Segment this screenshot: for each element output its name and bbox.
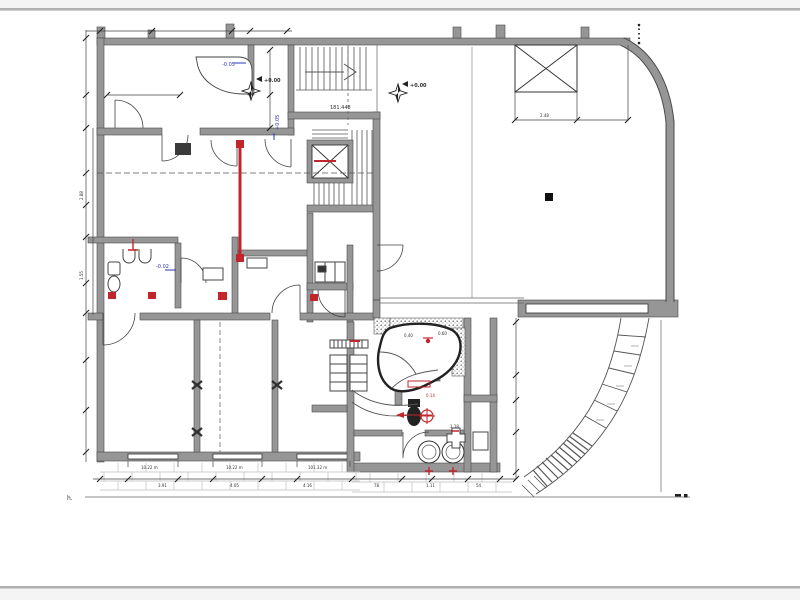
- skylight-opening: [515, 45, 628, 120]
- dim-number: 4.16: [303, 483, 312, 488]
- selected-wall-red: [239, 143, 242, 258]
- landing-label: 181.448: [330, 105, 351, 111]
- terrace-note: h.: [67, 495, 73, 502]
- curved-ramp: [522, 318, 649, 497]
- red-annotations: [108, 140, 459, 475]
- wall-joint-x-icons: [192, 381, 282, 436]
- dim-number: 1.55: [79, 271, 84, 280]
- bench: [203, 268, 223, 280]
- dim-number: 1.11: [426, 483, 435, 488]
- sink-icon: [123, 249, 135, 263]
- radiator: [330, 340, 368, 348]
- level-label: +0.00: [410, 83, 427, 89]
- benchmark-star-icon: [389, 84, 407, 102]
- wc-dark-icon: [407, 406, 421, 426]
- table: [247, 258, 267, 268]
- window-label: 10.22 m: [141, 465, 158, 470]
- wc-icon: [108, 262, 120, 275]
- skylight-dim: 2.48: [540, 113, 549, 118]
- pool-depth: 0.40: [404, 333, 413, 338]
- dim-number: 78: [374, 483, 380, 488]
- cabinet-run: [315, 262, 345, 282]
- ramp-steps: [533, 433, 592, 486]
- level-label: +0.00: [264, 78, 281, 84]
- interior-walls: [88, 45, 497, 472]
- drawing-sheet: +0.00 +0.00 -0.05 +0.05 -0.02 181.448 2.…: [0, 0, 800, 600]
- dim-number: 54: [476, 483, 482, 488]
- cistern: [408, 399, 420, 407]
- blue-level-label: -0.02: [156, 264, 169, 270]
- skylight-cross-icon: [515, 45, 577, 92]
- window-label: 101.32 m: [308, 465, 327, 470]
- dim-number: 1.18: [450, 424, 459, 429]
- blue-level-label: +0.05: [275, 115, 281, 130]
- duct: [473, 432, 488, 450]
- curved-wall: [622, 42, 670, 303]
- column-dot: [545, 193, 553, 201]
- pool-depth: 0.60: [438, 331, 447, 336]
- cabinet: [175, 143, 191, 155]
- floor-plan-canvas: +0.00 +0.00 -0.05 +0.05 -0.02 181.448 2.…: [0, 0, 800, 600]
- sink-icon: [139, 249, 151, 263]
- dim-number: 3.91: [158, 483, 167, 488]
- bidet-icon: [108, 276, 120, 292]
- elevator-shaft: [307, 140, 353, 183]
- window-label: 10.22 m: [226, 465, 243, 470]
- red-depth-label: 0.14: [426, 393, 435, 398]
- dim-number: 2.88: [79, 191, 84, 200]
- dim-number: 4.05: [230, 483, 239, 488]
- blue-level-label: -0.05: [222, 62, 235, 68]
- round-basin-icon: [418, 441, 440, 463]
